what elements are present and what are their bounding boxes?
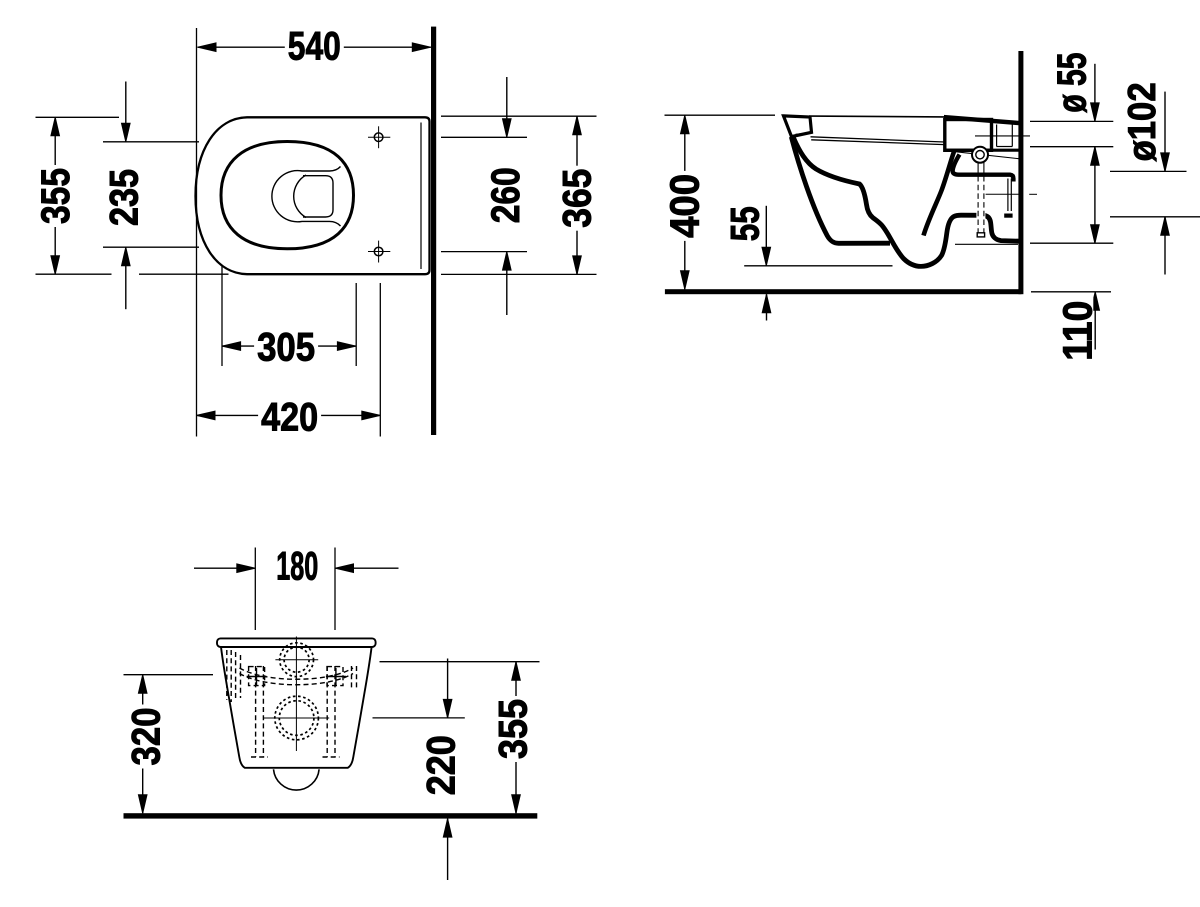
svg-text:355: 355 bbox=[34, 168, 78, 224]
svg-text:260: 260 bbox=[484, 167, 528, 223]
svg-text:ø 55: ø 55 bbox=[1048, 53, 1094, 113]
svg-text:365: 365 bbox=[556, 169, 600, 228]
svg-text:220: 220 bbox=[419, 735, 463, 795]
svg-text:55: 55 bbox=[724, 206, 768, 241]
svg-text:305: 305 bbox=[257, 325, 315, 369]
svg-text:355: 355 bbox=[492, 699, 536, 759]
svg-text:420: 420 bbox=[261, 395, 318, 439]
svg-text:320: 320 bbox=[125, 708, 169, 766]
svg-text:235: 235 bbox=[103, 169, 147, 226]
svg-text:110: 110 bbox=[1054, 301, 1100, 361]
svg-text:180: 180 bbox=[276, 545, 318, 589]
svg-text:ø102: ø102 bbox=[1121, 82, 1164, 161]
svg-text:540: 540 bbox=[288, 25, 341, 69]
svg-text:400: 400 bbox=[662, 174, 708, 238]
